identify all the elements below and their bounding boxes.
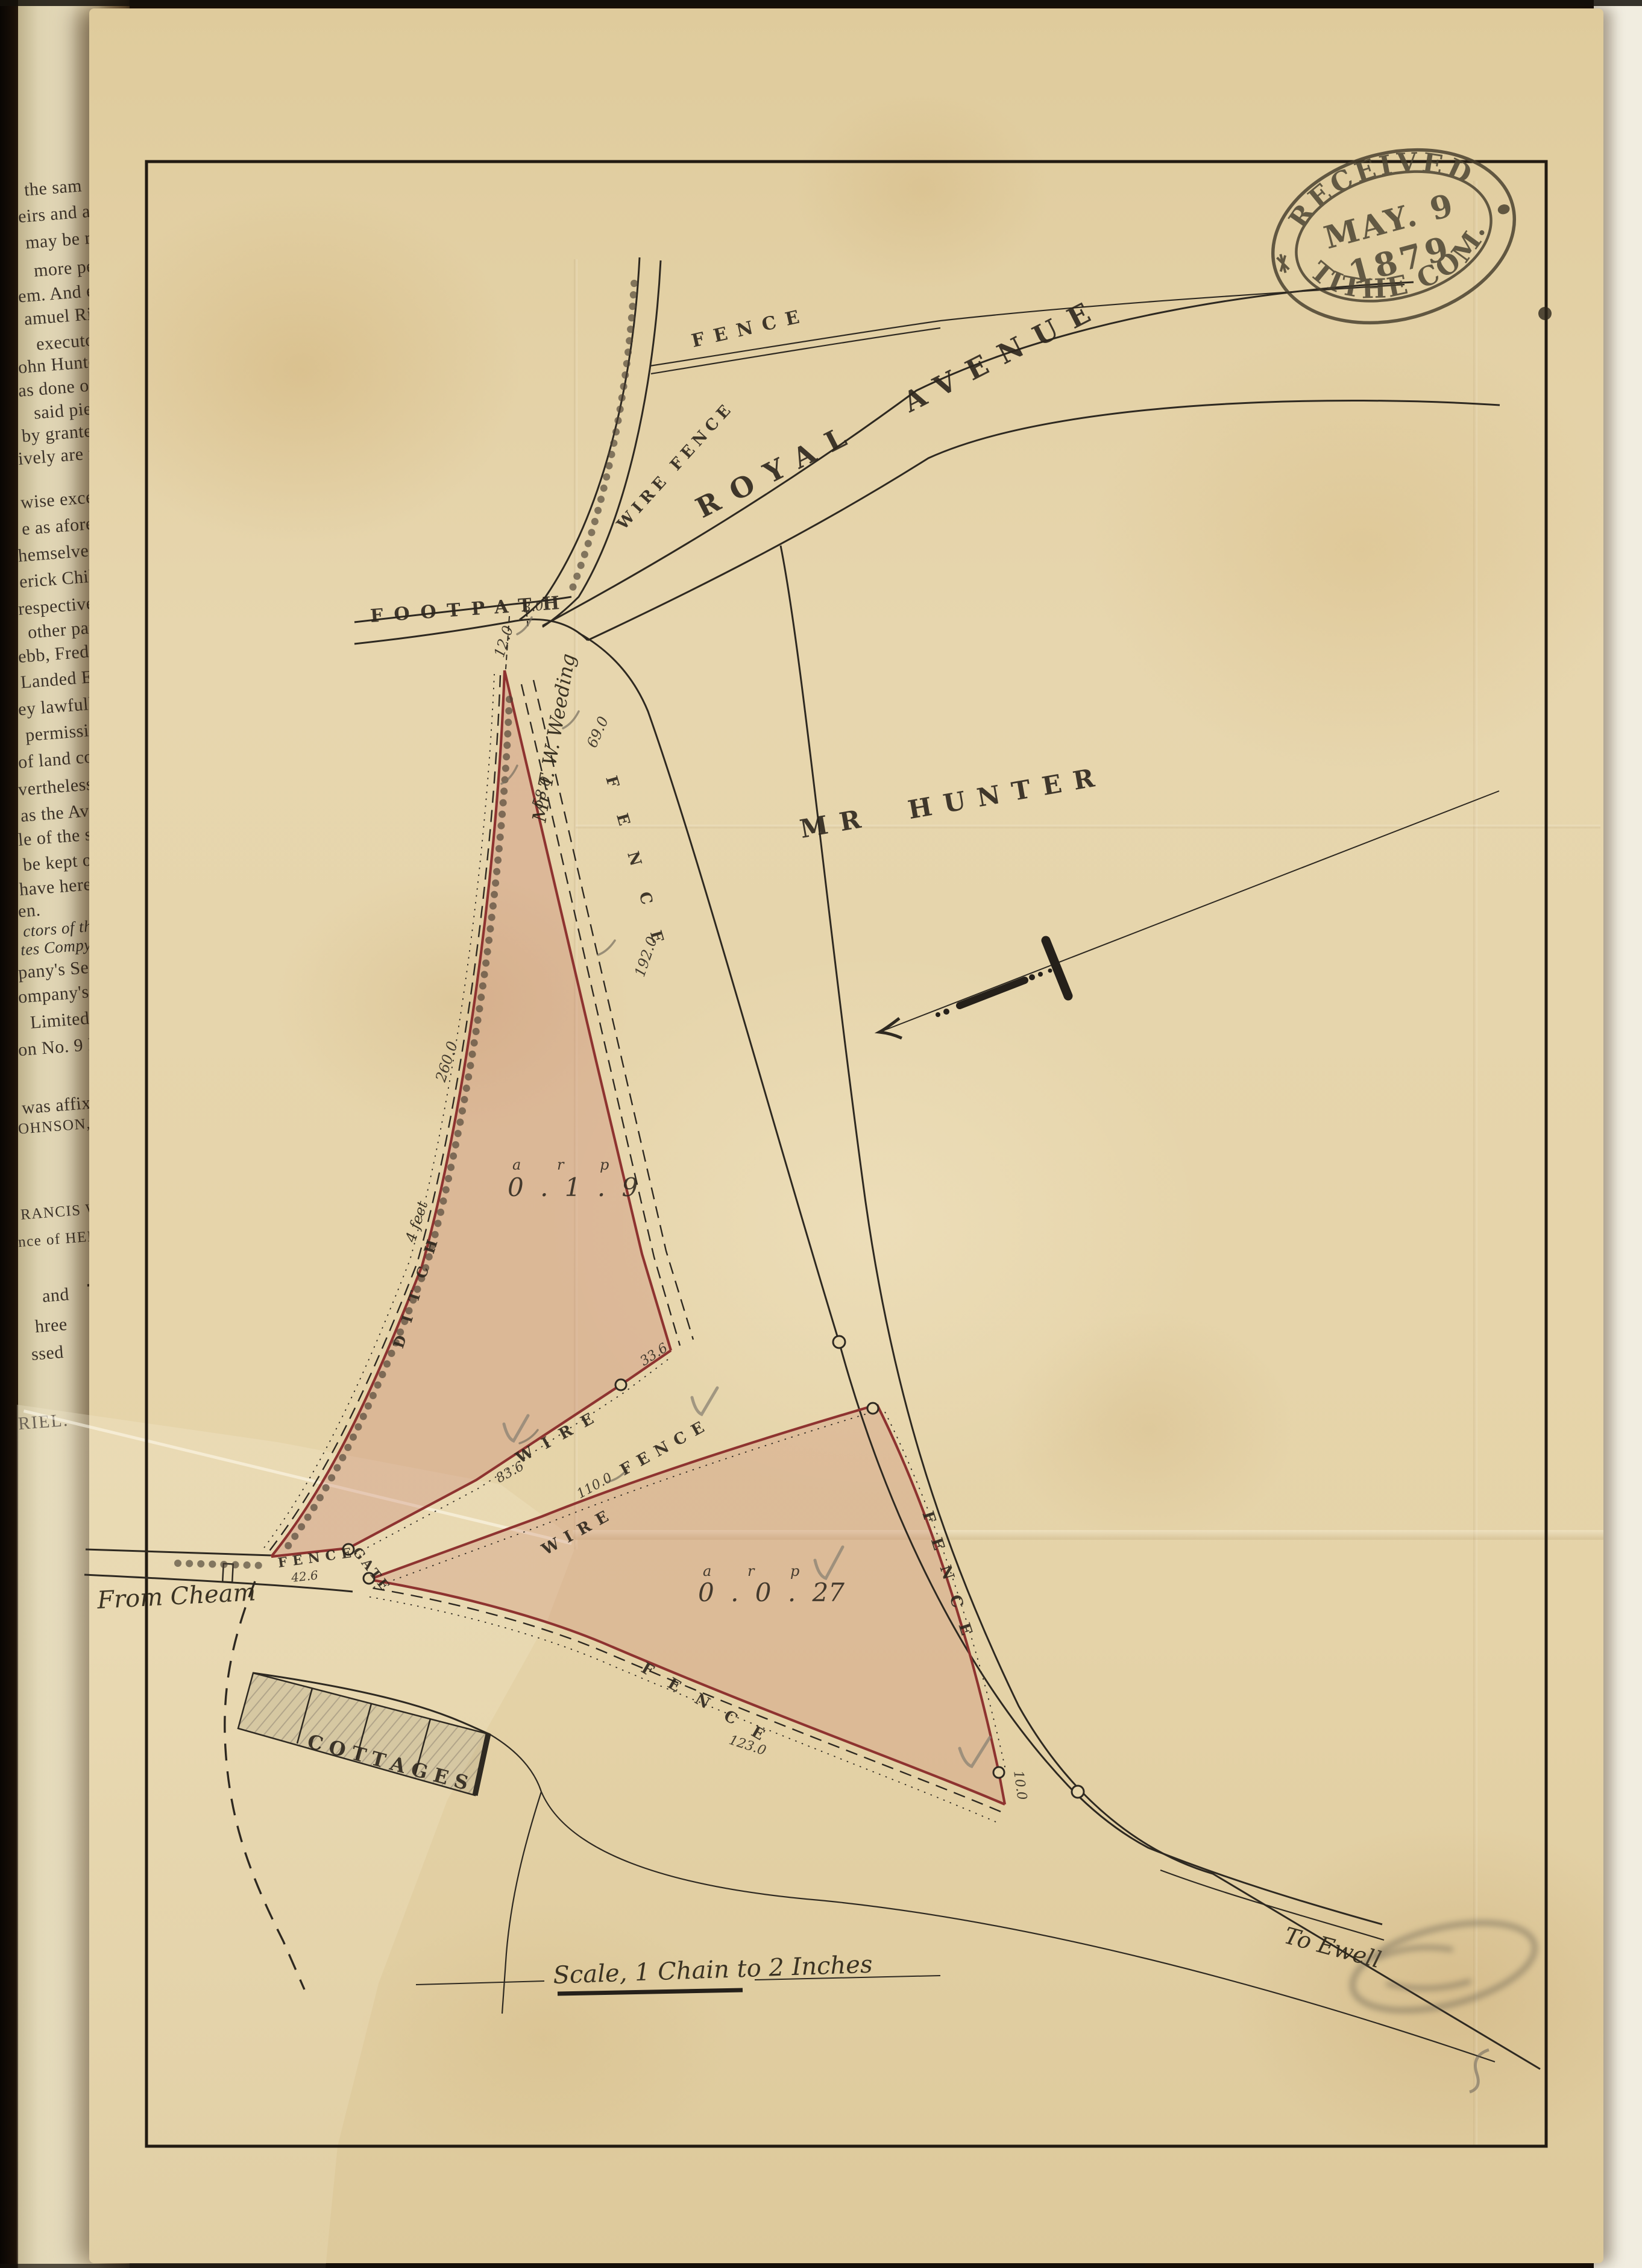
- hedge-cheam-road: [178, 1563, 268, 1566]
- meridian-needle: [960, 980, 1025, 1006]
- area-value: 0 . 1 . 9: [508, 1173, 638, 1202]
- pencil-check: [692, 1388, 717, 1414]
- smudge-marks: [1374, 1947, 1471, 1988]
- meridian-dot: [943, 1009, 949, 1015]
- area-value: 0 . 0 . 27: [698, 1578, 845, 1607]
- measure-260-0: 260.0: [432, 1039, 461, 1085]
- area-units: a r p: [703, 1563, 799, 1580]
- dashed-boundary-line: [225, 1581, 304, 1989]
- fence-node: [867, 1403, 878, 1414]
- fence-node: [615, 1379, 626, 1390]
- received-stamp: RECEIVED MAY. 9 1879 TITHE COM.: [1253, 121, 1534, 348]
- north-meridian-mark: [879, 791, 1499, 1038]
- stamp-cross-ornament: [1277, 253, 1290, 274]
- royal-avenue-upper-edge: [543, 282, 1414, 626]
- fence-label-top: FENCE: [690, 304, 811, 352]
- road-lines: [84, 257, 1540, 2069]
- gate-label: GATE: [349, 1545, 394, 1596]
- meridian-dot: [1048, 969, 1052, 973]
- scanned-survey-map-page: { "stamp": {"line1":"RECEIVED","line2":"…: [0, 0, 1642, 2268]
- meridian-dot: [1038, 972, 1043, 977]
- meridian-cross-bar: [1046, 940, 1068, 996]
- scale-side-rule: [416, 1981, 544, 1985]
- measure-10-0: 10.0: [1010, 1769, 1030, 1801]
- from-cheam-label: From Cheam: [96, 1578, 256, 1614]
- road-fork-line: [502, 1792, 541, 2014]
- area-units: a r p: [512, 1156, 609, 1173]
- mr-hunter-label: MR HUNTER: [797, 761, 1109, 844]
- ink-blot: [1538, 307, 1552, 320]
- east-road-east-edge: [781, 546, 1540, 2069]
- survey-map-drawing: FENCE WIRE FENCE ROYAL AVENUE FOOTPATH M…: [0, 0, 1642, 2268]
- pencil-hook: [598, 940, 615, 955]
- pencil-squiggle: [1470, 2050, 1489, 2092]
- fence-node: [993, 1767, 1004, 1778]
- measure-69-0: 69.0: [584, 714, 612, 750]
- measure-42-6: 42.6: [290, 1567, 319, 1585]
- scale-note: Scale, 1 Chain to 2 Inches: [553, 1951, 873, 1989]
- map-border-frame: [146, 162, 1546, 2146]
- road-gate-node: [1072, 1786, 1084, 1798]
- page-top-edge: [0, 0, 1642, 6]
- measure-12-0: 12.0: [491, 623, 517, 659]
- page-bottom-edge: [0, 2264, 1145, 2268]
- meridian-dot: [1029, 974, 1035, 980]
- scale-note-group: Scale, 1 Chain to 2 Inches: [416, 1951, 940, 1994]
- road-gate-node: [833, 1336, 845, 1348]
- meridian-dot: [936, 1012, 940, 1017]
- cheam-road-upper-edge: [86, 1549, 271, 1555]
- scale-underline: [558, 1990, 743, 1994]
- ewell-road-second-line: [1160, 1870, 1384, 1940]
- to-ewell-label: To Ewell: [1282, 1922, 1384, 1973]
- hedge-branch-road: [573, 283, 634, 588]
- measure-8-0: 8.0: [521, 598, 544, 616]
- stamp-blot: [1497, 203, 1511, 216]
- meridian-line: [879, 791, 1499, 1032]
